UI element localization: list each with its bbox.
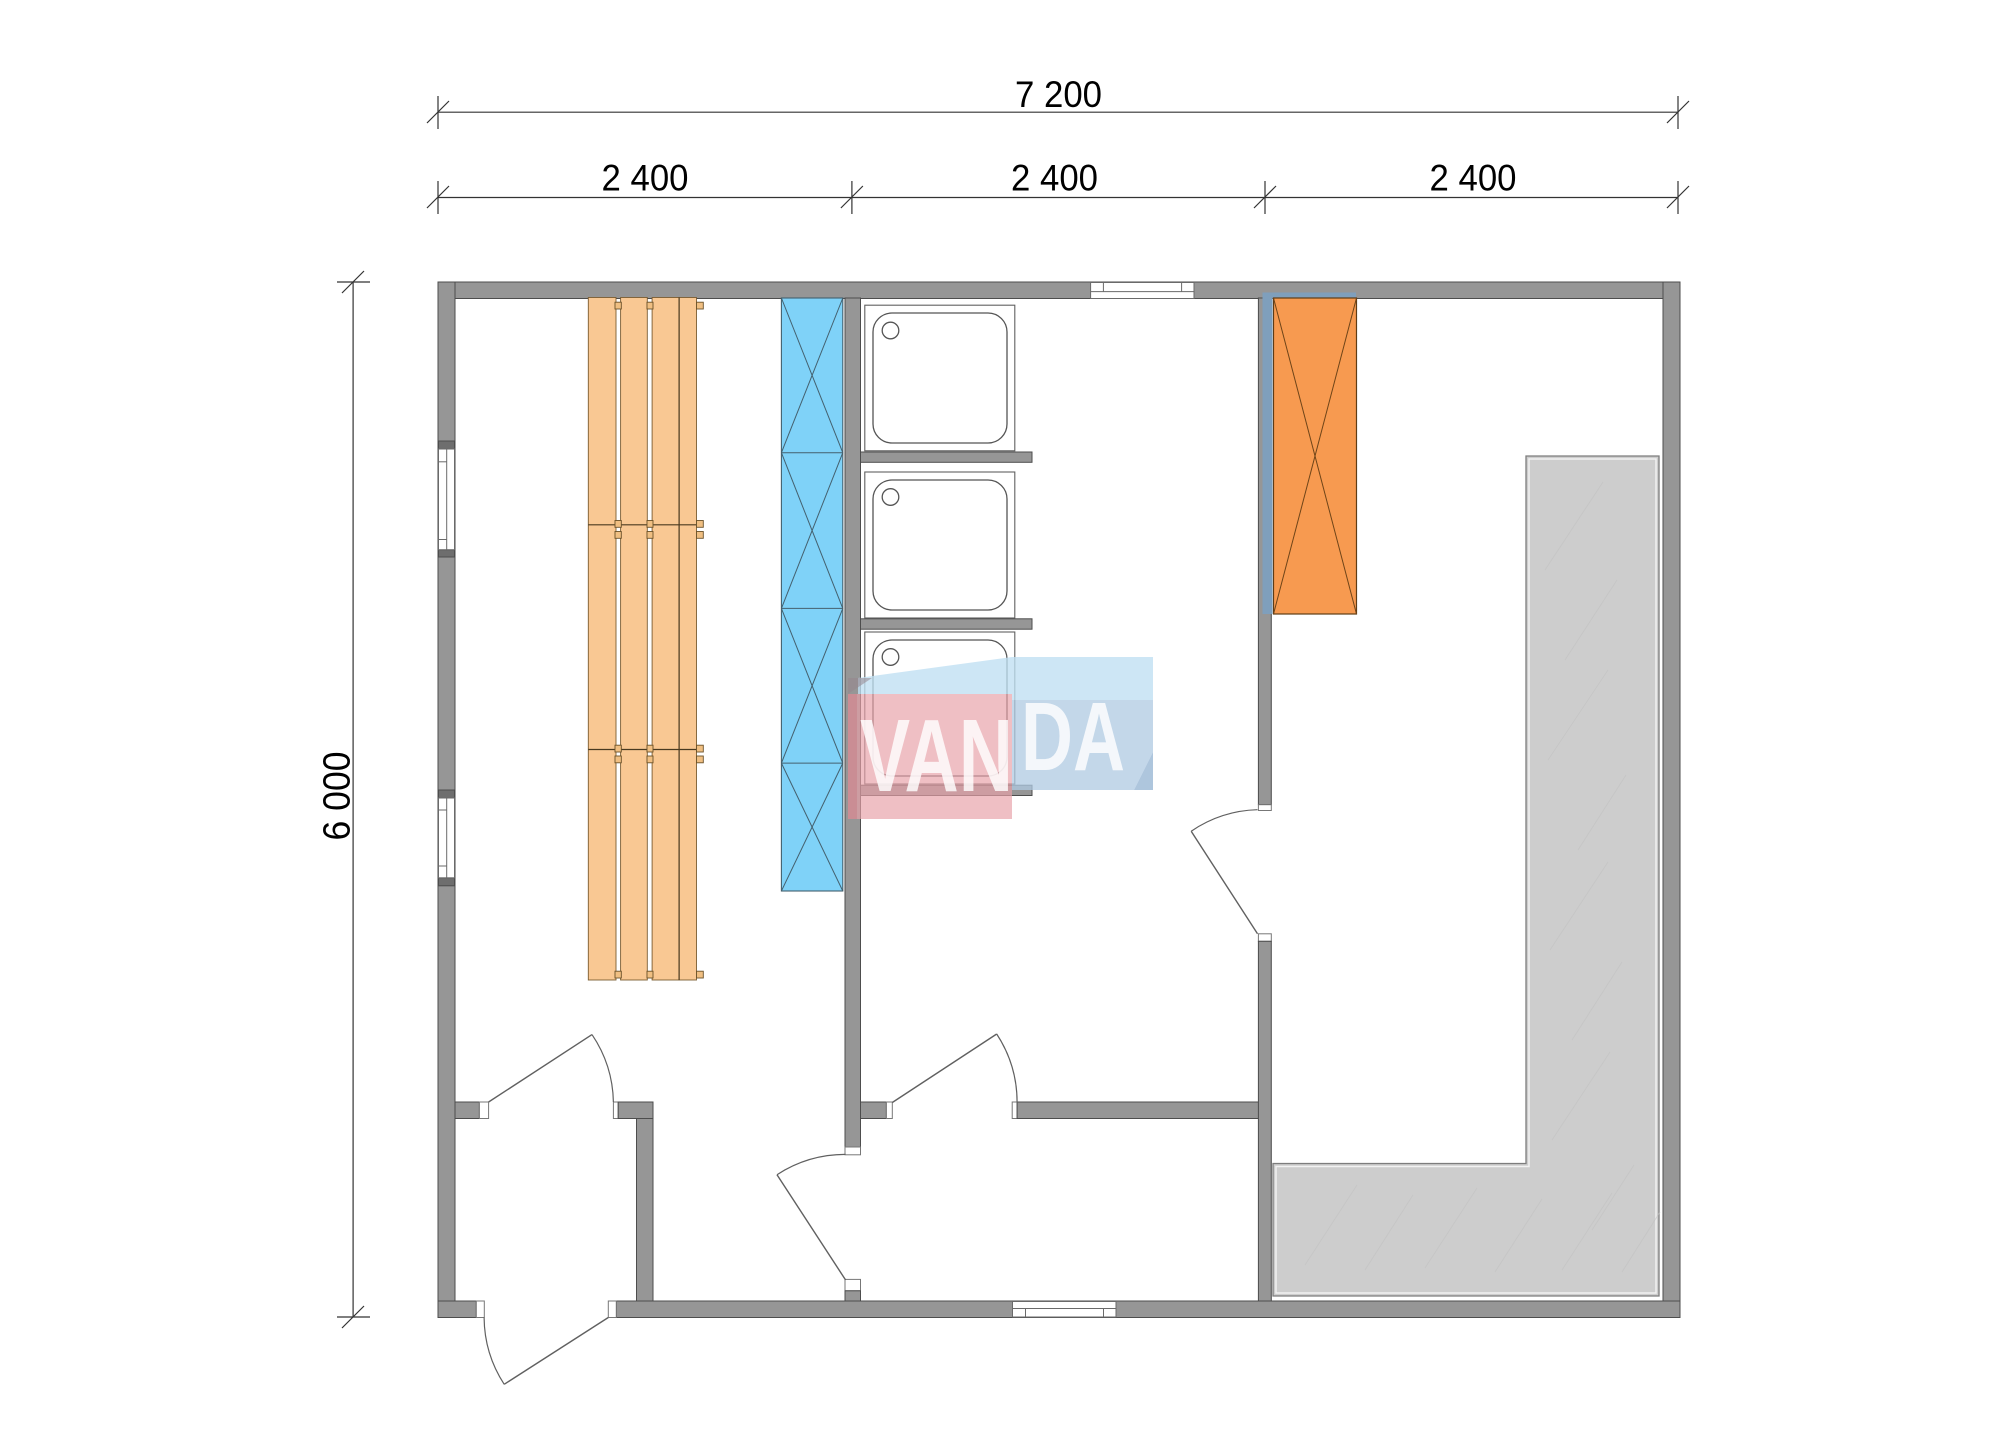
- svg-text:DA: DA: [1021, 682, 1125, 791]
- svg-text:2 400: 2 400: [602, 158, 689, 199]
- svg-text:2 400: 2 400: [1430, 158, 1517, 199]
- svg-text:7 200: 7 200: [1015, 74, 1102, 115]
- svg-text:VAN: VAN: [860, 698, 1013, 813]
- svg-text:6 000: 6 000: [317, 752, 359, 841]
- svg-text:2 400: 2 400: [1011, 158, 1098, 199]
